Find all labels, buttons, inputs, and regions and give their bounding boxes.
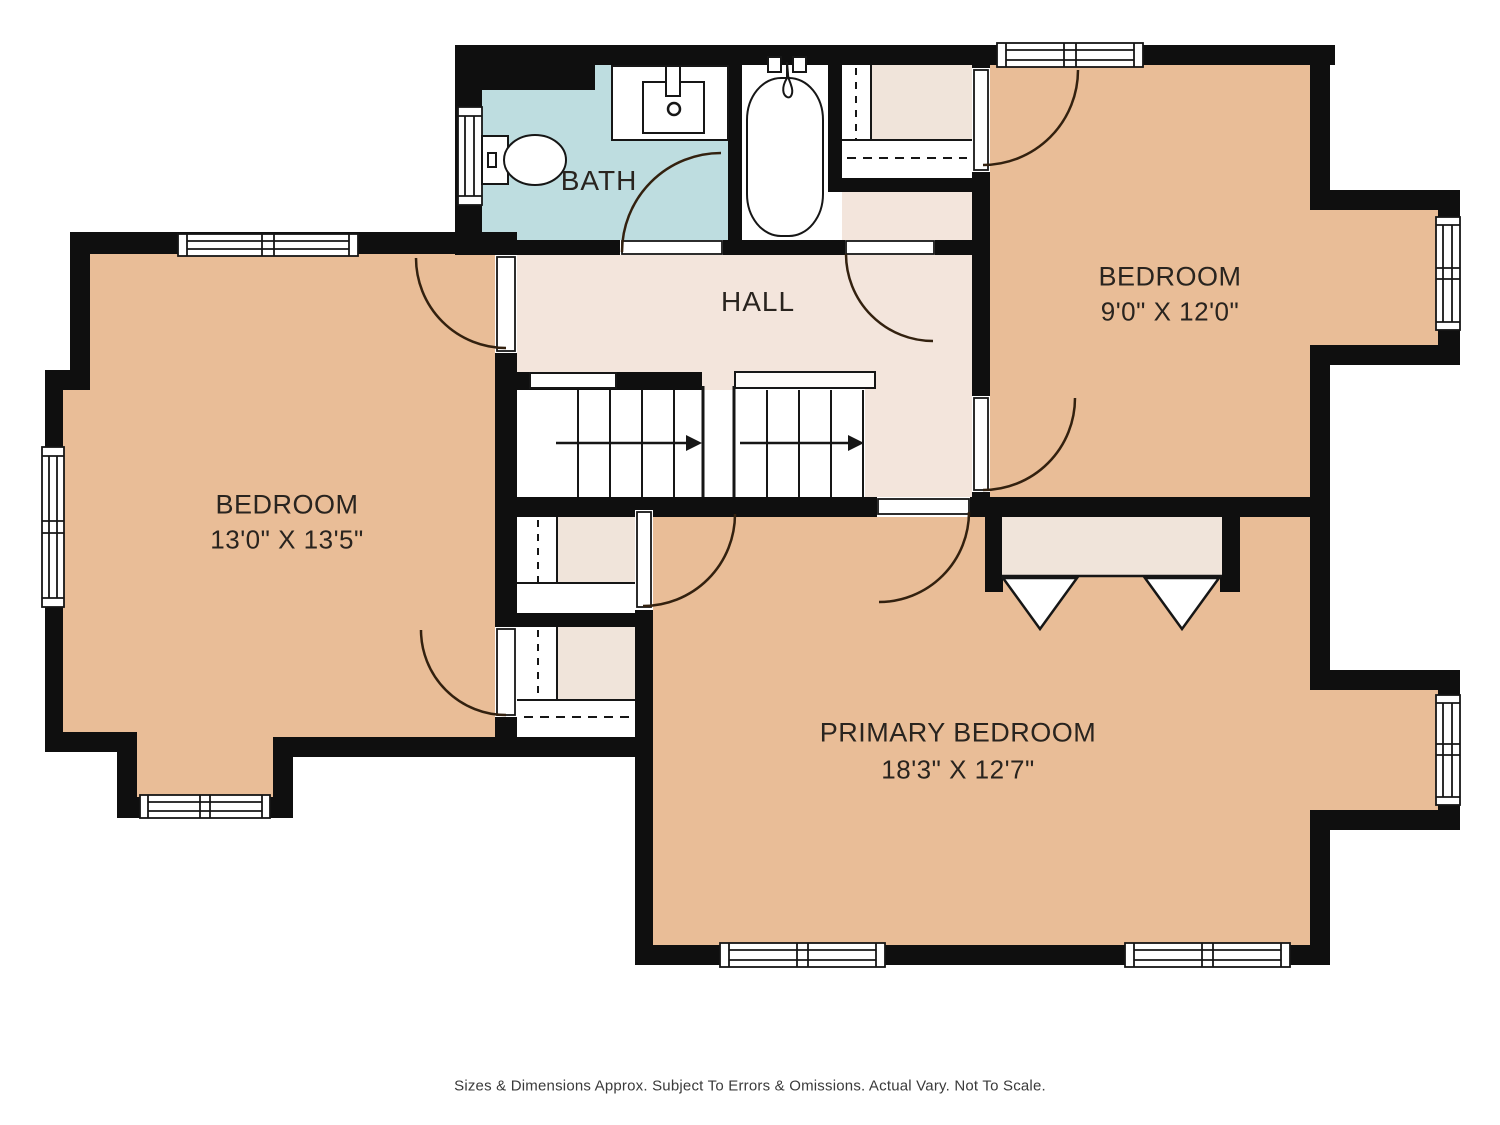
toilet-icon (482, 135, 566, 185)
window (458, 107, 482, 205)
bath-label: BATH (561, 165, 638, 197)
bedroom-right-dimensions: 9'0" X 12'0" (1101, 297, 1239, 328)
window (720, 943, 885, 967)
landing-floor (865, 372, 972, 497)
stair-header (735, 372, 875, 388)
bedroom-left-dimensions: 13'0" X 13'5" (210, 525, 363, 556)
window (140, 795, 270, 818)
stair-top-door (530, 373, 616, 388)
window (42, 447, 64, 607)
window (1436, 217, 1460, 330)
primary-bifold-closet-floor (1002, 517, 1222, 575)
floor-plan-canvas: BATH HALL BEDROOM 9'0" X 12'0" BEDROOM 1… (0, 0, 1500, 1125)
window (178, 234, 358, 256)
primary-bedroom-dimensions: 18'3" X 12'7" (881, 755, 1034, 786)
primary-bedroom-label: PRIMARY BEDROOM (820, 718, 1097, 749)
sink-vanity-icon (612, 66, 728, 140)
hall-alcove-floor (842, 192, 972, 240)
bedroom-right-label: BEDROOM (1098, 262, 1241, 293)
window (1436, 695, 1460, 805)
hall-label: HALL (721, 286, 795, 318)
bedroom-left-label: BEDROOM (215, 490, 358, 521)
window (997, 43, 1143, 67)
window (1125, 943, 1290, 967)
disclaimer-text: Sizes & Dimensions Approx. Subject To Er… (454, 1078, 1046, 1095)
floor-plan-drawing (0, 0, 1500, 1125)
